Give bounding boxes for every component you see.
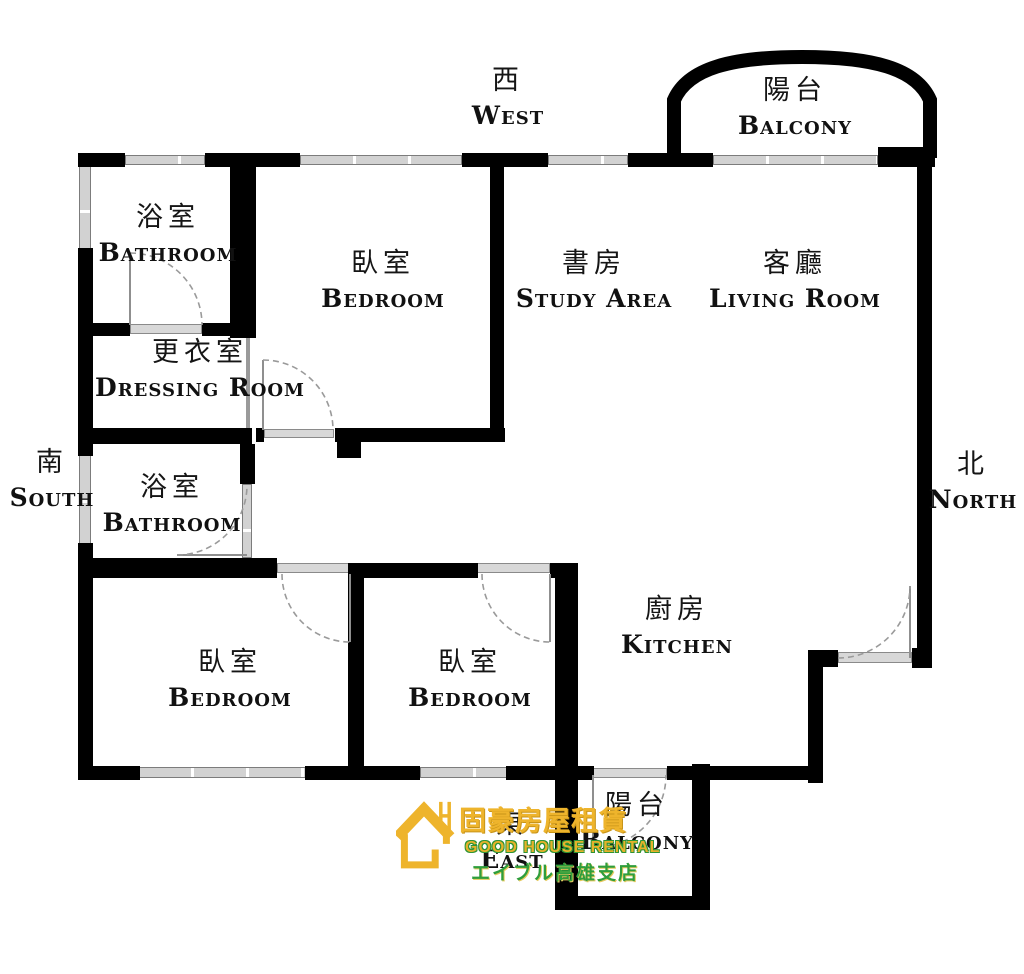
label-study-area-zh: 書房 (562, 249, 626, 279)
bedroom-s-door-arc (482, 574, 550, 642)
floor-plan: 浴室 Bathroom 臥室 Bedroom 書房 Study Area 客廳 … (0, 0, 1024, 974)
label-bathroom-nw-zh: 浴室 (136, 203, 200, 233)
compass-north-zh: 北 (957, 450, 989, 480)
label-dressing-room-zh: 更衣室 (152, 338, 248, 368)
label-bathroom-nw-en: Bathroom (99, 238, 238, 268)
label-bedroom-s-en: Bedroom (408, 683, 532, 713)
compass-west: 西 West (472, 66, 544, 131)
entry-door-arc (838, 586, 910, 658)
compass-south-zh: 南 (36, 448, 68, 478)
compass-north: 北 North (929, 450, 1018, 515)
label-dressing-room-en: Dressing Room (95, 373, 305, 403)
compass-west-en: West (472, 101, 544, 131)
label-bathroom-w: 浴室 Bathroom (103, 473, 242, 538)
compass-west-zh: 西 (492, 66, 524, 96)
label-bathroom-nw: 浴室 Bathroom (99, 203, 238, 268)
label-bedroom-sw: 臥室 Bedroom (168, 648, 292, 713)
label-bedroom-s: 臥室 Bedroom (408, 648, 532, 713)
label-bedroom-sw-en: Bedroom (168, 683, 292, 713)
label-bedroom-w: 臥室 Bedroom (321, 249, 445, 314)
label-living-room-en: Living Room (709, 284, 881, 314)
compass-north-en: North (929, 485, 1018, 515)
agency-logo: 固豪房屋租賃 GOOD HOUSE RENTAL エイブル高雄支店 (394, 788, 644, 898)
label-living-room: 客廳 Living Room (709, 249, 881, 314)
label-bedroom-s-zh: 臥室 (438, 648, 502, 678)
label-balcony-n-zh: 陽台 (763, 76, 827, 106)
label-kitchen: 廚房 Kitchen (621, 595, 733, 660)
label-bedroom-w-en: Bedroom (321, 284, 445, 314)
label-bedroom-sw-zh: 臥室 (198, 648, 262, 678)
label-dressing-room: 更衣室 Dressing Room (95, 338, 305, 403)
label-kitchen-zh: 廚房 (645, 595, 709, 625)
logo-branch-ja: エイブル高雄支店 (471, 858, 639, 885)
label-living-room-zh: 客廳 (763, 249, 827, 279)
compass-south: 南 South (10, 448, 95, 513)
house-icon (396, 793, 466, 871)
label-balcony-n: 陽台 Balcony (738, 76, 852, 141)
logo-company-en: GOOD HOUSE RENTAL (465, 839, 660, 857)
label-bathroom-w-zh: 浴室 (140, 473, 204, 503)
label-study-area: 書房 Study Area (516, 249, 672, 314)
logo-company-zh: 固豪房屋租賃 (459, 799, 627, 838)
label-balcony-n-en: Balcony (738, 111, 852, 141)
bedroom-sw-door-arc (282, 574, 350, 642)
label-kitchen-en: Kitchen (621, 630, 733, 660)
compass-south-en: South (10, 483, 95, 513)
label-study-area-en: Study Area (516, 284, 672, 314)
label-bathroom-w-en: Bathroom (103, 508, 242, 538)
label-bedroom-w-zh: 臥室 (351, 249, 415, 279)
